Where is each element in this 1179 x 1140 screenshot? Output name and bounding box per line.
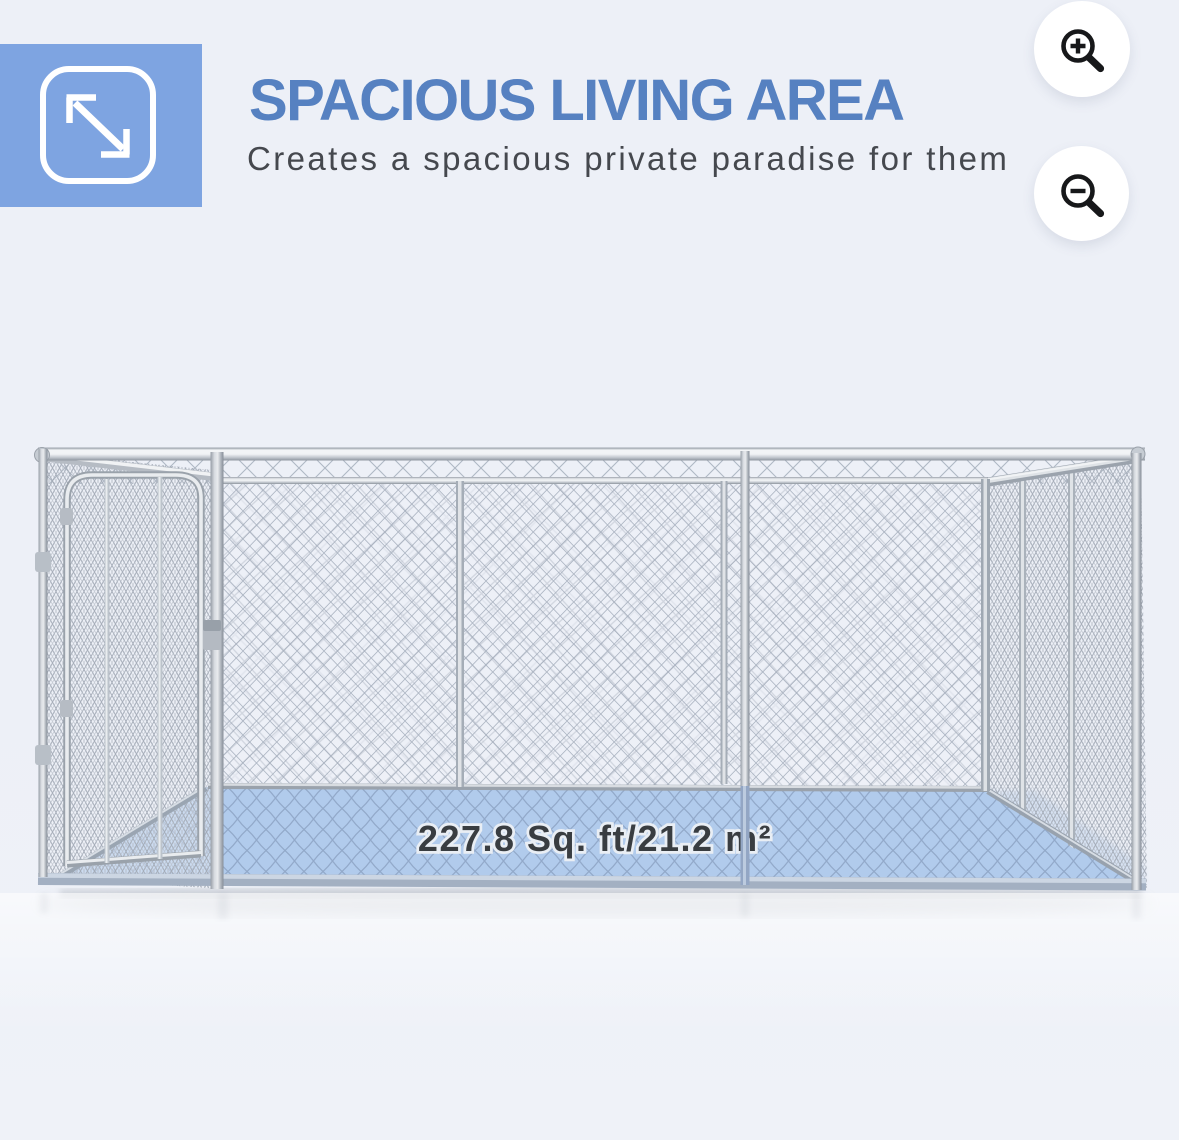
svg-text:227.8 Sq. ft/21.2 m²: 227.8 Sq. ft/21.2 m² [418, 818, 772, 859]
